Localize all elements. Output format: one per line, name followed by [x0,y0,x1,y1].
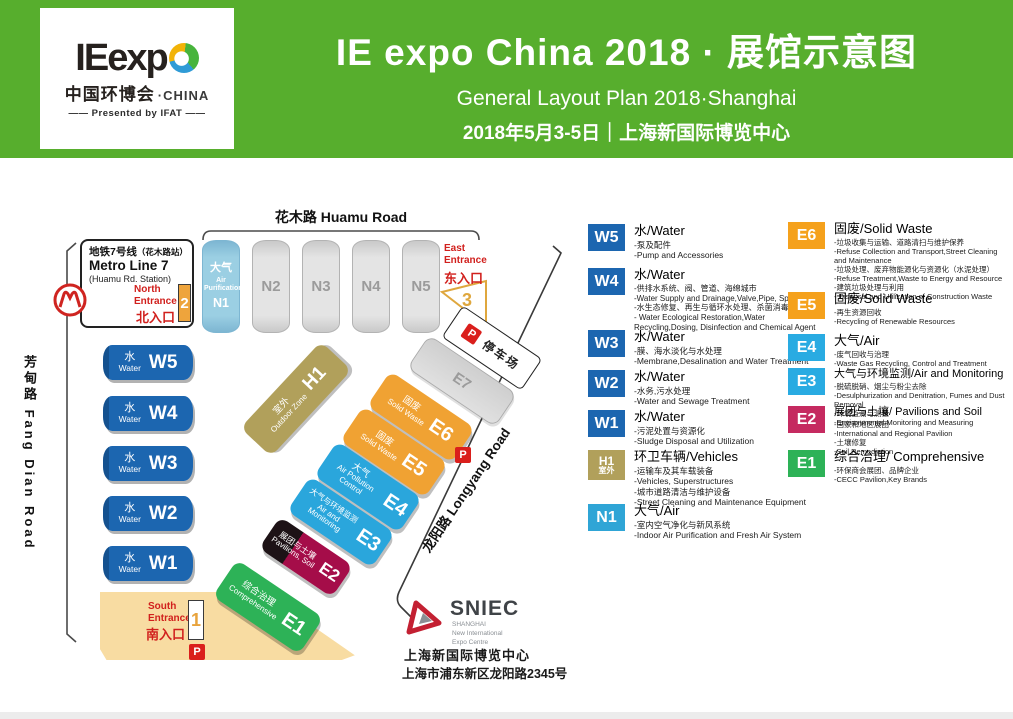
banner-text: IE expo China 2018 · 展馆示意图 General Layou… [245,0,1008,158]
huamu-road-label: 花木路 Huamu Road [203,207,479,227]
legend-line: -土壤修复 [834,438,1012,447]
legend-badge-w4: W4 [588,268,625,295]
hall-w5-desc: 水Water [119,352,141,372]
parking-icon-road: P [455,447,471,463]
hall-w3: 水Water W3 [103,446,193,481]
legend-badge-e1: E1 [788,450,825,477]
legend-item-n1: N1 大气/Air -室内空气净化与新风系统 -Indoor Air Purif… [588,504,829,541]
legend-title-e6: 固废/Solid Waste [834,222,1012,236]
hall-h1-code: H1 [299,362,332,395]
huamu-road-line [203,231,479,240]
ie-expo-logo: IEexp 中国环博会 ·CHINA —— Presented by IFAT … [40,8,234,149]
hall-n4-code: N4 [361,278,380,295]
legend-title-e4: 大气/Air [834,334,1012,348]
page-subtitle: General Layout Plan 2018·Shanghai [457,87,797,111]
hall-n5: N5 [402,240,440,333]
venue-address-cn: 上海市浦东新区龙阳路2345号 [402,663,567,682]
hall-e2-code: E2 [315,558,343,586]
south-entrance-gate-number: 1 [188,600,204,640]
hall-w1-code: W1 [149,553,178,575]
parking-icon-lot: P [461,323,483,345]
east-entrance-cn: 东入口 [444,268,483,287]
legend-line: -垃圾处理、废弃物能源化与资源化（水泥处理） [834,265,1012,274]
north-entrance-gate-number: 2 [178,284,191,322]
legend-line: -垃圾收集与运输、道路清扫与维护保养 [834,238,1012,247]
legend-title-e3: 大气与环境监测/Air and Monitoring [834,368,1012,380]
event-date-venue: 2018年5月3-5日｜上海新国际博览中心 [463,118,790,145]
legend-title-n1: 大气/Air [634,504,829,518]
hall-n4: N4 [352,240,390,333]
legend-line: -Indoor Air Purification and Fresh Air S… [634,530,829,540]
hall-e5-code: E5 [397,449,430,482]
legend-badge-w3: W3 [588,330,625,357]
hall-w4-code: W4 [149,403,178,425]
legend-line: -脱硫脱硝、烟尘与粉尘去除 [834,382,1012,391]
logo-cn-row: 中国环博会 ·CHINA [65,80,210,105]
legend-badge-e5: E5 [788,292,825,319]
hall-n1-en: Air Purification [204,277,238,292]
legend-badge-e6: E6 [788,222,825,249]
hall-w1-desc: 水Water [119,553,141,573]
legend-item-e6: E6 固废/Solid Waste -垃圾收集与运输、道路清扫与维护保养 -Re… [788,222,1012,301]
page-title: IE expo China 2018 · 展馆示意图 [336,22,917,76]
hall-n1: 大气 Air Purification N1 [202,240,240,333]
south-entrance-cn: 南入口 [146,624,185,643]
legend-item-e4: E4 大气/Air -废气回收与治理 -Waste Gas Recycling,… [788,334,1012,368]
metro-line-cn: 地铁7号线（花木路站） [89,246,187,258]
legend-badge-w2: W2 [588,370,625,397]
hall-e4-code: E4 [379,489,412,522]
metro-station-cn: （花木路站） [137,247,188,257]
hall-e6-desc: 固废Solid Waste [385,389,431,429]
legend-line: -废气回收与治理 [834,350,1012,359]
logo-wordmark-text: IEexp [75,39,166,77]
legend-line: -再生资源回收 [834,308,1012,317]
logo-globe-icon [169,43,199,73]
metro-station-en: (Huamu Rd. Station) [89,274,187,284]
logo-cn-suffix: ·CHINA [158,88,210,103]
hall-w3-desc: 水Water [119,453,141,473]
hall-h1: 室外Outdoor Zone H1 [240,342,351,457]
legend-line: -International and Regional Pavilion [834,429,1012,438]
legend-badge-n1: N1 [588,504,625,531]
legend-title-e2: 展团与土壤/ Pavilions and Soil [834,406,1012,418]
hall-e2-desc: 展团与土壤Pavilions, Soil [269,528,321,571]
hall-w1: 水Water W1 [103,546,193,581]
legend-badge-e2: E2 [788,406,825,433]
hall-w5: 水Water W5 [103,345,193,380]
hall-n3: N3 [302,240,340,333]
legend-badge-e3: E3 [788,368,825,395]
hall-w2-desc: 水Water [119,503,141,523]
legend-title-e1: 综合治理/ Comprehensive [834,450,1012,464]
sniec-subtitle: SHANGHAI New International Expo Centre [452,621,503,647]
hall-n1-cn: 大气 [210,263,232,274]
hall-h1-desc: 室外Outdoor Zone [262,385,310,434]
bottom-border [0,712,1013,719]
fangdian-road-label: 芳甸路 Fang Dian Road [20,355,39,570]
legend-line: -环保商会展团、品牌企业 [834,466,1012,475]
legend-badge-h1: H1室外 [588,450,625,480]
hall-w4-desc: 水Water [119,403,141,423]
legend-line: -城市道路清洁与维护设备 [634,487,829,497]
east-entrance-en: East Entrance [444,243,492,266]
sniec-logo-icon [402,596,446,640]
banner: IEexp 中国环博会 ·CHINA —— Presented by IFAT … [0,0,1013,158]
legend-item-e1: E1 综合治理/ Comprehensive -环保商会展团、品牌企业 -CEC… [788,450,1012,484]
hall-w4: 水Water W4 [103,396,193,431]
hall-n2-code: N2 [261,278,280,295]
legend-item-e5: E5 固废/Solid Waste -再生资源回收 -Recycling of … [788,292,1012,326]
hall-e3-code: E3 [352,524,385,557]
legend-line: -Waste Gas Recycling, Control and Treatm… [834,359,1012,368]
hall-w5-code: W5 [149,352,178,374]
hall-e1-code: E1 [277,608,310,641]
hall-n5-code: N5 [411,278,430,295]
hall-e7-code: E7 [450,369,475,393]
hall-n2: N2 [252,240,290,333]
hall-w2: 水Water W2 [103,496,193,531]
legend-line: -Refuse Collection and Transport,Street … [834,247,1012,265]
north-entrance-cn: 北入口 [136,307,175,326]
legend-badge-e4: E4 [788,334,825,361]
hall-w3-code: W3 [149,453,178,475]
logo-wordmark: IEexp [75,39,198,77]
hall-n1-code: N1 [213,296,229,310]
hall-e5-desc: 固废Solid Waste [358,424,404,464]
sniec-name: SNIEC [450,597,519,621]
legend-line: -CECC Pavilion,Key Brands [834,475,1012,484]
legend-line: -国家和地区展团 [834,420,1012,429]
parking-icon-south: P [189,644,205,660]
legend-line: -Recycling of Renewable Resources [834,317,1012,326]
hall-w2-code: W2 [149,503,178,525]
hall-n3-code: N3 [311,278,330,295]
logo-cn: 中国环博会 [65,80,155,105]
legend-line: -Refuse Treatment,Waste to Energy and Re… [834,274,1012,283]
hall-e6-code: E6 [424,414,457,447]
layout-plan-page: IEexp 中国环博会 ·CHINA —— Presented by IFAT … [0,0,1013,719]
shanghai-metro-icon [52,282,88,318]
venue-name-cn: 上海新国际博览中心 [404,645,530,664]
metro-line-en: Metro Line 7 [89,258,187,274]
legend-badge-w1: W1 [588,410,625,437]
logo-presented-by: —— Presented by IFAT —— [69,108,206,119]
legend-badge-w5: W5 [588,224,625,251]
legend-title-e5: 固废/Solid Waste [834,292,1012,306]
parking-lot-label: 停车场 [479,336,523,374]
legend-line: -室内空气净化与新风系统 [634,520,829,530]
